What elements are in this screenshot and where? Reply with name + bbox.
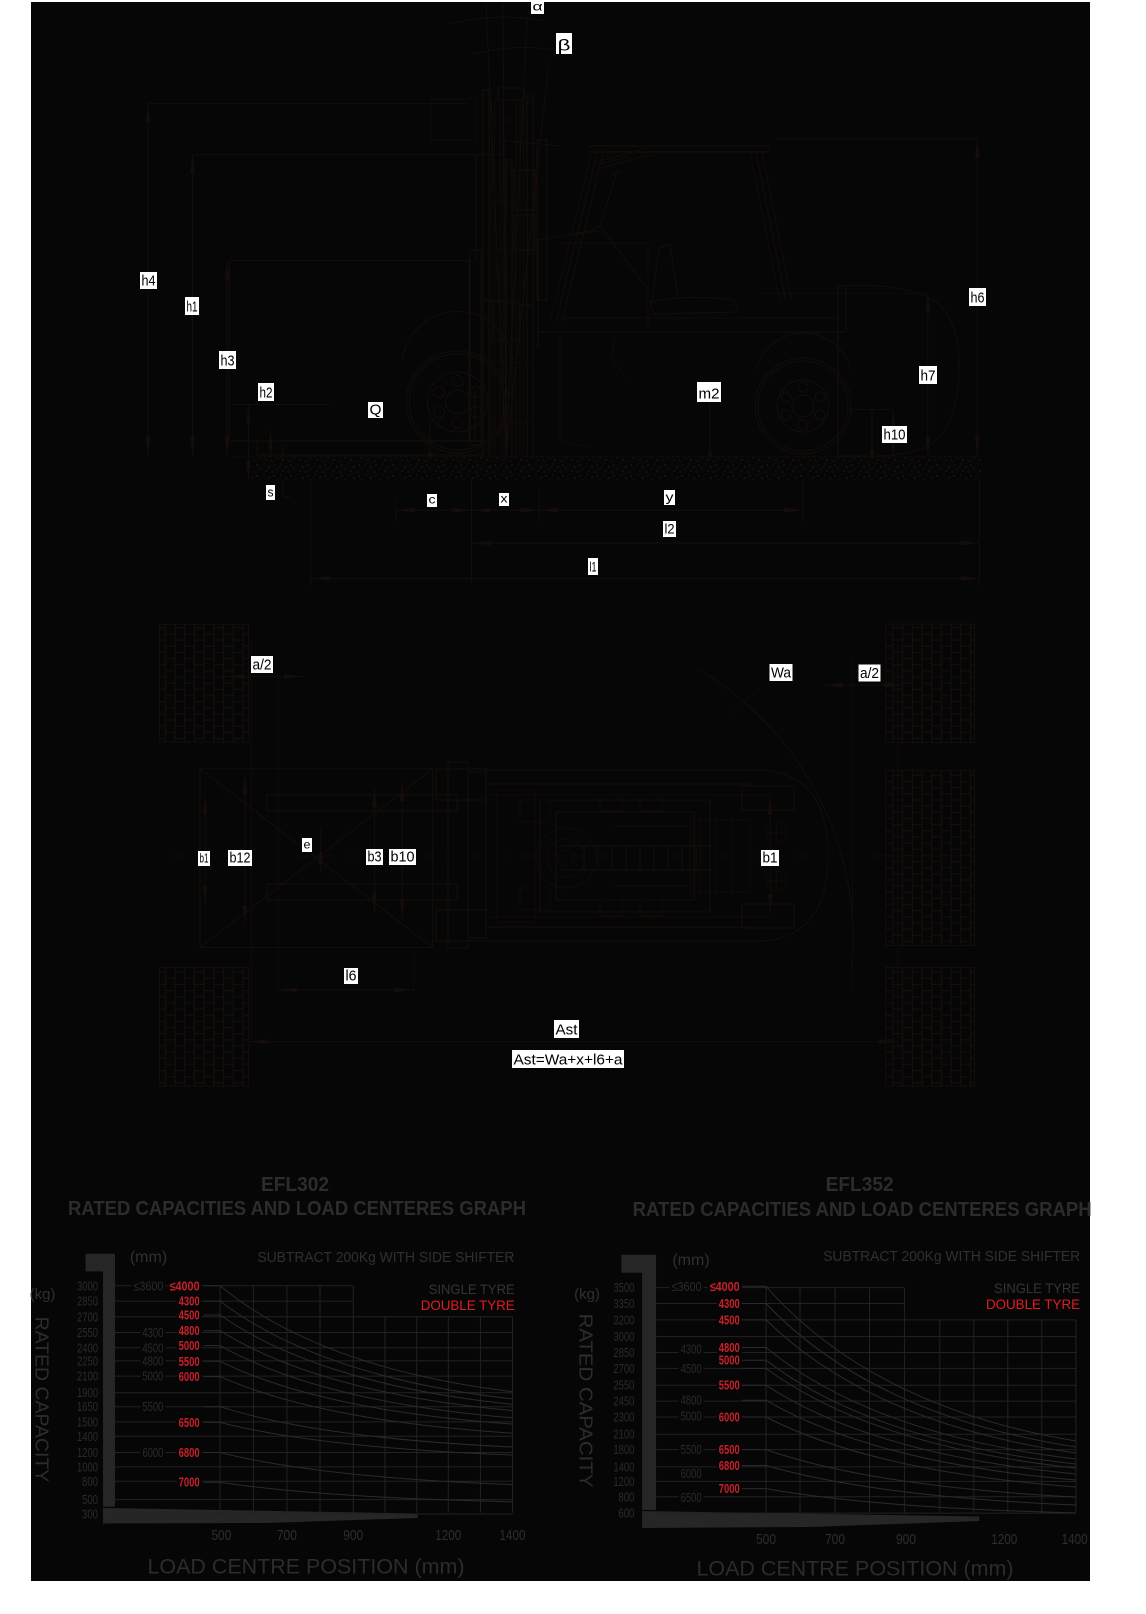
svg-text:900: 900 [896,1531,916,1548]
svg-text:2850: 2850 [77,1294,98,1309]
svg-text:≤3600: ≤3600 [133,1278,163,1293]
svg-text:2250: 2250 [77,1353,98,1368]
svg-text:1400: 1400 [613,1459,634,1474]
svg-text:4500: 4500 [719,1312,740,1327]
svg-text:b10: b10 [391,849,415,866]
svg-text:s: s [268,485,274,500]
svg-text:RATED CAPACITIES AND LOAD CENT: RATED CAPACITIES AND LOAD CENTERES GRAPH [633,1199,1092,1221]
svg-text:≤4000: ≤4000 [710,1279,740,1294]
svg-text:h2: h2 [260,385,273,402]
svg-text:500: 500 [211,1527,231,1544]
svg-text:3200: 3200 [613,1312,634,1327]
svg-text:4300: 4300 [142,1325,163,1340]
svg-text:800: 800 [82,1474,98,1489]
svg-text:6500: 6500 [179,1415,200,1430]
svg-text:1400: 1400 [1062,1531,1088,1548]
svg-text:2550: 2550 [77,1325,98,1340]
svg-text:600: 600 [618,1506,634,1521]
svg-text:h3: h3 [221,353,235,370]
svg-text:5500: 5500 [179,1354,200,1369]
svg-text:3000: 3000 [77,1278,98,1293]
svg-text:l6: l6 [346,968,357,985]
svg-text:Ast=Wa+x+l6+a: Ast=Wa+x+l6+a [514,1052,624,1069]
svg-text:1650: 1650 [77,1399,98,1414]
svg-text:4300: 4300 [719,1296,740,1311]
svg-text:4500: 4500 [179,1308,200,1323]
svg-text:6000: 6000 [179,1369,200,1384]
svg-text:m2: m2 [699,386,720,403]
svg-text:300: 300 [82,1507,98,1522]
svg-text:1400: 1400 [77,1429,98,1444]
svg-text:x: x [501,492,508,506]
svg-text:(mm): (mm) [130,1249,167,1266]
svg-text:4800: 4800 [179,1323,200,1338]
svg-text:1400: 1400 [500,1527,526,1544]
svg-text:2100: 2100 [77,1369,98,1384]
svg-text:1500: 1500 [77,1414,98,1429]
svg-text:5500: 5500 [681,1442,702,1457]
svg-text:500: 500 [82,1492,98,1507]
svg-text:(kg): (kg) [30,1286,56,1303]
svg-text:1900: 1900 [77,1385,98,1400]
svg-text:6000: 6000 [719,1410,740,1425]
svg-text:β: β [558,38,571,55]
svg-text:b3: b3 [368,849,382,866]
svg-text:RATED CAPACITY: RATED CAPACITY [31,1317,51,1483]
svg-text:LOAD CENTRE POSITION (mm): LOAD CENTRE POSITION (mm) [148,1556,465,1579]
svg-text:≤3600: ≤3600 [672,1279,702,1294]
svg-text:y: y [666,490,675,505]
svg-text:4800: 4800 [142,1353,163,1368]
svg-text:RATED CAPACITIES AND LOAD CENT: RATED CAPACITIES AND LOAD CENTERES GRAPH [68,1198,526,1220]
svg-text:(kg): (kg) [574,1286,600,1303]
svg-text:l1: l1 [590,559,597,575]
svg-text:h6: h6 [971,290,985,307]
svg-text:a/2: a/2 [860,665,879,682]
svg-text:4800: 4800 [681,1393,702,1408]
svg-text:3000: 3000 [613,1329,634,1344]
svg-text:α: α [533,0,543,14]
svg-text:5500: 5500 [719,1378,740,1393]
svg-text:1200: 1200 [77,1445,98,1460]
svg-text:3500: 3500 [613,1280,634,1295]
svg-text:SINGLE TYRE: SINGLE TYRE [429,1281,515,1297]
svg-text:4300: 4300 [179,1294,200,1309]
svg-text:DOUBLE TYRE: DOUBLE TYRE [421,1297,515,1313]
svg-text:7000: 7000 [719,1481,740,1496]
svg-text:c: c [429,493,436,507]
svg-text:5000: 5000 [142,1369,163,1384]
svg-text:2300: 2300 [613,1410,634,1425]
svg-text:e: e [304,838,311,852]
svg-text:5000: 5000 [681,1409,702,1424]
svg-text:6000: 6000 [142,1445,163,1460]
svg-text:RATED CAPACITY: RATED CAPACITY [576,1314,596,1488]
svg-text:6800: 6800 [719,1458,740,1473]
svg-text:(mm): (mm) [672,1252,709,1269]
svg-text:6800: 6800 [179,1445,200,1460]
svg-text:2850: 2850 [613,1345,634,1360]
svg-text:Ast: Ast [556,1022,579,1039]
svg-text:DOUBLE TYRE: DOUBLE TYRE [986,1296,1080,1312]
svg-text:LOAD CENTRE POSITION (mm): LOAD CENTRE POSITION (mm) [697,1558,1014,1581]
svg-text:7000: 7000 [179,1475,200,1490]
svg-text:900: 900 [343,1527,363,1544]
svg-text:6000: 6000 [681,1466,702,1481]
svg-text:4300: 4300 [681,1341,702,1356]
svg-text:a/2: a/2 [253,657,272,674]
svg-text:6500: 6500 [681,1490,702,1505]
svg-text:5000: 5000 [179,1338,200,1353]
svg-text:1200: 1200 [991,1531,1017,1548]
svg-text:b12: b12 [230,850,251,867]
svg-text:700: 700 [277,1527,297,1544]
svg-text:2550: 2550 [613,1378,634,1393]
svg-text:4500: 4500 [681,1361,702,1376]
svg-text:1200: 1200 [613,1474,634,1489]
svg-text:6500: 6500 [719,1442,740,1457]
svg-text:5000: 5000 [719,1353,740,1368]
svg-text:l2: l2 [665,521,675,537]
svg-text:SUBTRACT 200Kg WITH SIDE SHIFT: SUBTRACT 200Kg WITH SIDE SHIFTER [257,1249,514,1266]
svg-text:b1: b1 [200,851,209,866]
svg-text:800: 800 [618,1489,634,1504]
svg-text:SINGLE TYRE: SINGLE TYRE [994,1280,1080,1296]
svg-text:3350: 3350 [613,1296,634,1311]
svg-text:h4: h4 [142,273,156,290]
svg-text:SUBTRACT 200Kg WITH SIDE SHIFT: SUBTRACT 200Kg WITH SIDE SHIFTER [823,1248,1080,1265]
svg-text:EFL352: EFL352 [826,1174,894,1196]
svg-text:2450: 2450 [613,1394,634,1409]
svg-text:h10: h10 [884,427,906,444]
svg-text:h7: h7 [921,368,936,385]
svg-text:1200: 1200 [435,1527,461,1544]
svg-text:500: 500 [756,1531,776,1548]
svg-text:EFL302: EFL302 [261,1174,329,1196]
svg-text:5500: 5500 [142,1399,163,1414]
svg-text:1000: 1000 [77,1459,98,1474]
svg-text:2700: 2700 [77,1309,98,1324]
svg-text:Q: Q [370,402,382,419]
svg-text:700: 700 [825,1531,845,1548]
svg-text:b1: b1 [763,850,778,867]
svg-text:2700: 2700 [613,1361,634,1376]
svg-text:h1: h1 [187,299,198,316]
svg-text:≤4000: ≤4000 [170,1278,200,1293]
svg-text:Wa: Wa [771,665,792,682]
svg-text:1800: 1800 [613,1442,634,1457]
svg-text:2100: 2100 [613,1427,634,1442]
